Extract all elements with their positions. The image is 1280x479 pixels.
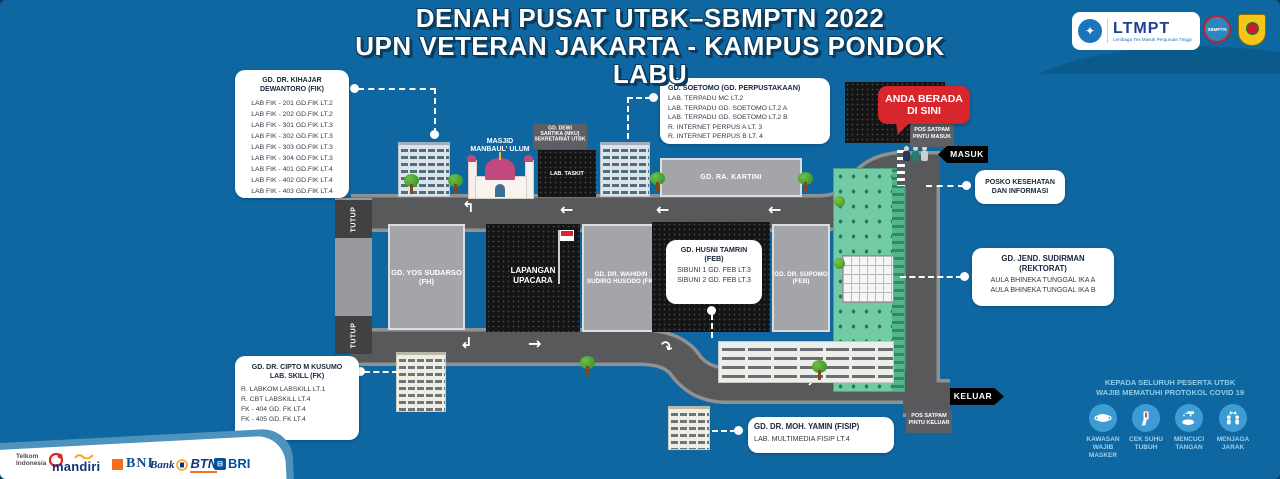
- callout-line: LAB. TERPADU GD. SOETOMO LT.2 B: [668, 113, 822, 123]
- supomo-label: GD. DR. SUPOMO: [774, 271, 828, 278]
- flag-white: [561, 236, 573, 241]
- building-kartini: GD. RA. KARTINI: [660, 158, 802, 197]
- person-icon: [903, 146, 910, 162]
- callout-line: LAB. TERPADU GD. SOETOMO LT.2 A: [668, 104, 822, 114]
- building-yos-sudarso: GD. YOS SUDARSO (FH): [388, 224, 465, 330]
- tree: [404, 174, 419, 196]
- callout-line: AULA BHINEKA TUNGGAL IKA A: [976, 276, 1110, 286]
- callout-kihajar-dewantoro: GD. DR. KIHAJAR DEWANTORO (FIK) LAB FIK …: [235, 70, 349, 198]
- bush: [834, 258, 845, 269]
- kemdikbud-logo-icon: ✦: [1078, 19, 1102, 43]
- callout-title: (REKTORAT): [976, 264, 1110, 274]
- protocol-temperature: [1132, 404, 1160, 432]
- you-are-here-label: DI SINI: [907, 105, 941, 117]
- lane-arrow-left: ←: [768, 200, 781, 219]
- callout-husni-tamrin: GD. HUSNI TAMRIN (FEB) SIBUNI 1 GD. FEB …: [666, 240, 762, 304]
- callout-title: (FEB): [669, 254, 759, 263]
- person-body: [903, 151, 910, 161]
- thermometer-icon: [1136, 408, 1156, 428]
- dewi-sartika-label: GD. DEWI SARTIKA (MKU) SEKRETARIAT UTBK: [533, 124, 587, 149]
- pos-satpam-keluar-label: POS SATPAM PINTU KELUAR: [906, 410, 952, 433]
- connector-line: [926, 185, 964, 187]
- building-supomo: GD. DR. SUPOMO (FEB): [772, 224, 830, 332]
- sbmptn-logo: SBMPTN: [1203, 15, 1231, 43]
- connector-dot: [430, 130, 439, 139]
- logo-divider: [1107, 19, 1108, 43]
- building-lab-taskit: LAB. TASKIT: [538, 150, 596, 197]
- callout-sudirman: GD. JEND. SUDIRMAN (REKTORAT) AULA BHINE…: [972, 248, 1114, 306]
- wahidin-label: SUDIRO HUSODO (FK): [587, 278, 655, 285]
- protocol-handwash: [1175, 404, 1203, 432]
- telkom-wordmark: Telkom: [16, 453, 46, 460]
- connector-line: [627, 97, 651, 99]
- covid-notice-line: KEPADA SELURUH PESERTA UTBK: [1080, 378, 1260, 388]
- ltmpt-wordmark: LTMPT: [1113, 21, 1192, 37]
- mosque-minaret-cap: [467, 155, 476, 162]
- connector-line: [364, 371, 398, 373]
- connector-line: [434, 88, 436, 134]
- distance-icon: [1223, 408, 1243, 428]
- lane-arrow-right: →: [528, 334, 541, 353]
- callout-line: FK - 404 GD. FK LT.4: [241, 405, 353, 415]
- callout-line: LAB FIK - 302 GD.FIK LT.3: [242, 131, 342, 142]
- upn-logo: [1238, 14, 1266, 46]
- callout-line: LAB. TERPADU MC LT.2: [668, 94, 822, 104]
- connector-line: [627, 97, 629, 139]
- poster-title: DENAH PUSAT UTBK–SBMPTN 2022 UPN VETERAN…: [325, 4, 975, 88]
- callout-line: LAB FIK - 402 GD.FIK LT.4: [242, 175, 342, 186]
- callout-cipto-kusumo: GD. DR. CIPTO M KUSUMO LAB. SKILL (FK) R…: [235, 356, 359, 440]
- bni-mark-icon: [112, 459, 123, 470]
- ltmpt-subtitle: Lembaga Tes Masuk Perguruan Tinggi: [1113, 37, 1192, 42]
- pos-satpam-masuk-label: POS SATPAM PINTU MASUK: [910, 124, 954, 147]
- callout-line: LAB FIK - 403 GD.FIK LT.4: [242, 186, 342, 197]
- tree-trunk: [818, 370, 821, 380]
- keluar-sign: KELUAR: [950, 388, 1004, 405]
- person-icon: [921, 146, 928, 162]
- tree-trunk: [804, 182, 807, 192]
- road-closed-sign-top: TUTUP: [335, 200, 372, 238]
- tutup-label: TUTUP: [350, 206, 357, 232]
- indonesian-flag: [560, 230, 574, 241]
- masuk-label: MASUK: [942, 149, 984, 159]
- title-line-1: DENAH PUSAT UTBK–SBMPTN 2022: [325, 4, 975, 32]
- building-fisip: [668, 406, 710, 450]
- callout-posko: POSKO KESEHATAN DAN INFORMASI: [975, 170, 1065, 204]
- callout-line: LAB FIK - 301 GD.FIK LT.3: [242, 120, 342, 131]
- connector-line: [358, 88, 436, 90]
- aula-white-grid: [842, 255, 894, 303]
- callout-line: R. INTERNET PERPUS B LT. 4: [668, 132, 822, 142]
- road-closed-sign-bottom: TUTUP: [335, 316, 372, 354]
- callout-line: SIBUNI 2 GD. FEB LT.3: [669, 276, 759, 286]
- tree-trunk: [586, 366, 589, 376]
- telkom-wordmark: Indonesia: [16, 460, 46, 467]
- mosque-illustration: [466, 154, 536, 197]
- campus-map-poster: TUTUP TUTUP ← ← ← ↰ ↶ ↲ → ↷ → → MASJID M…: [0, 0, 1280, 479]
- person-body: [921, 151, 928, 161]
- mask-icon: [1093, 408, 1113, 428]
- callout-title: DAN INFORMASI: [992, 187, 1048, 196]
- bush: [834, 196, 845, 207]
- bri-logo: ⊟ BRI: [214, 456, 250, 471]
- btn-emblem-icon: [176, 459, 188, 471]
- yos-label: GD. YOS SUDARSO: [391, 268, 462, 277]
- kartini-label: GD. RA. KARTINI: [700, 174, 761, 181]
- btn-bank-word: Bank: [150, 459, 174, 471]
- you-are-here-bubble: ANDA BERADA DI SINI: [878, 86, 970, 124]
- supomo-label: (FEB): [793, 278, 810, 285]
- tree: [580, 356, 595, 378]
- callout-line: FK - 405 GD. FK LT.4: [241, 415, 353, 425]
- tree-trunk: [454, 184, 457, 194]
- callout-line: LAB FIK - 401 GD.FIK LT.4: [242, 164, 342, 175]
- handwash-icon: [1179, 408, 1199, 428]
- tutup-label: TUTUP: [350, 322, 357, 348]
- callout-title: POSKO KESEHATAN: [985, 178, 1055, 187]
- tree: [812, 360, 827, 382]
- callout-title: GD. DR. CIPTO M KUSUMO: [241, 363, 353, 372]
- bni-logo: BNI: [112, 456, 154, 472]
- building-tower: [600, 142, 650, 197]
- building-wahidin: GD. DR. WAHIDIN SUDIRO HUSODO (FK): [582, 224, 660, 332]
- masuk-sign: MASUK: [938, 146, 988, 163]
- keluar-label: KELUAR: [954, 391, 1000, 401]
- lane-arrow-branch: ↲: [460, 334, 473, 352]
- callout-line: LAB FIK - 202 GD.FIK LT.2: [242, 109, 342, 120]
- tree: [650, 172, 665, 194]
- callout-title: GD. HUSNI TAMRIN: [669, 245, 759, 254]
- callout-line: R. CBT LABSKILL LT.4: [241, 395, 353, 405]
- callout-line: LAB FIK - 304 GD.FIK LT.3: [242, 153, 342, 164]
- yos-label: (FH): [419, 277, 434, 286]
- mosque-door: [495, 184, 505, 197]
- callout-moh-yamin: GD. DR. MOH. YAMIN (FISIP) LAB. MULTIMED…: [748, 417, 894, 453]
- building-long-south: [718, 341, 894, 383]
- covid-notice-line: WAJIB MEMATUHI PROTOKOL COVID 19: [1080, 388, 1260, 398]
- mandiri-wordmark: mandiri: [52, 459, 100, 474]
- you-are-here-label: ANDA BERADA: [885, 93, 963, 105]
- callout-line: LAB FIK - 201 GD.FIK LT.2: [242, 98, 342, 109]
- callout-title: LAB. SKILL (FK): [241, 372, 353, 381]
- mandiri-logo: mandiri: [52, 453, 100, 474]
- lapangan-upacara: LAPANGAN UPACARA: [486, 224, 580, 332]
- building-labskill: [396, 352, 446, 412]
- lapangan-label: LAPANGAN UPACARA: [486, 266, 580, 286]
- callout-title: GD. JEND. SUDIRMAN: [976, 254, 1110, 264]
- callout-title: GD. DR. MOH. YAMIN (FISIP): [754, 422, 888, 431]
- mosque-minaret-cap: [524, 155, 533, 162]
- covid-notice: KEPADA SELURUH PESERTA UTBK WAJIB MEMATU…: [1080, 378, 1260, 397]
- person-body: [912, 151, 919, 161]
- bri-mark-icon: ⊟: [214, 458, 226, 470]
- callout-line: R. LABKOM LABSKILL LT.1: [241, 385, 353, 395]
- lane-arrow-left: ←: [560, 200, 573, 219]
- btn-logo: Bank BTN: [150, 456, 217, 473]
- tree-trunk: [410, 184, 413, 194]
- mosque-dome: [485, 158, 515, 180]
- wahidin-label: GD. DR. WAHIDIN: [595, 271, 648, 278]
- lab-taskit-label: LAB. TASKIT: [550, 171, 584, 177]
- callout-line: SIBUNI 1 GD. FEB LT.3: [669, 266, 759, 276]
- callout-line: LAB. MULTIMEDIA FISIP LT.4: [754, 434, 888, 443]
- title-line-2: UPN VETERAN JAKARTA - KAMPUS PONDOK LABU: [325, 32, 975, 88]
- connector-line: [712, 430, 736, 432]
- callout-line: R. INTERNET PERPUS A LT. 3: [668, 123, 822, 133]
- tree: [798, 172, 813, 194]
- bri-wordmark: BRI: [228, 456, 250, 471]
- callout-line: LAB FIK - 303 GD.FIK LT.3: [242, 142, 342, 153]
- callout-line: AULA BHINEKA TUNGGAL IKA B: [976, 286, 1110, 296]
- tree: [448, 174, 463, 196]
- lane-arrow-branch: ↰: [462, 198, 475, 216]
- tree-trunk: [656, 182, 659, 192]
- upn-logo-center: [1246, 22, 1259, 35]
- ltmpt-logo-card: ✦ LTMPT Lembaga Tes Masuk Perguruan Ting…: [1072, 12, 1200, 50]
- connector-line: [900, 276, 962, 278]
- sbmptn-label: SBMPTN: [1208, 27, 1227, 32]
- connector-line: [711, 314, 713, 338]
- person-icon: [912, 146, 919, 162]
- lane-arrow-left: ←: [656, 200, 669, 219]
- protocol-mask: [1089, 404, 1117, 432]
- protocol-distance: [1219, 404, 1247, 432]
